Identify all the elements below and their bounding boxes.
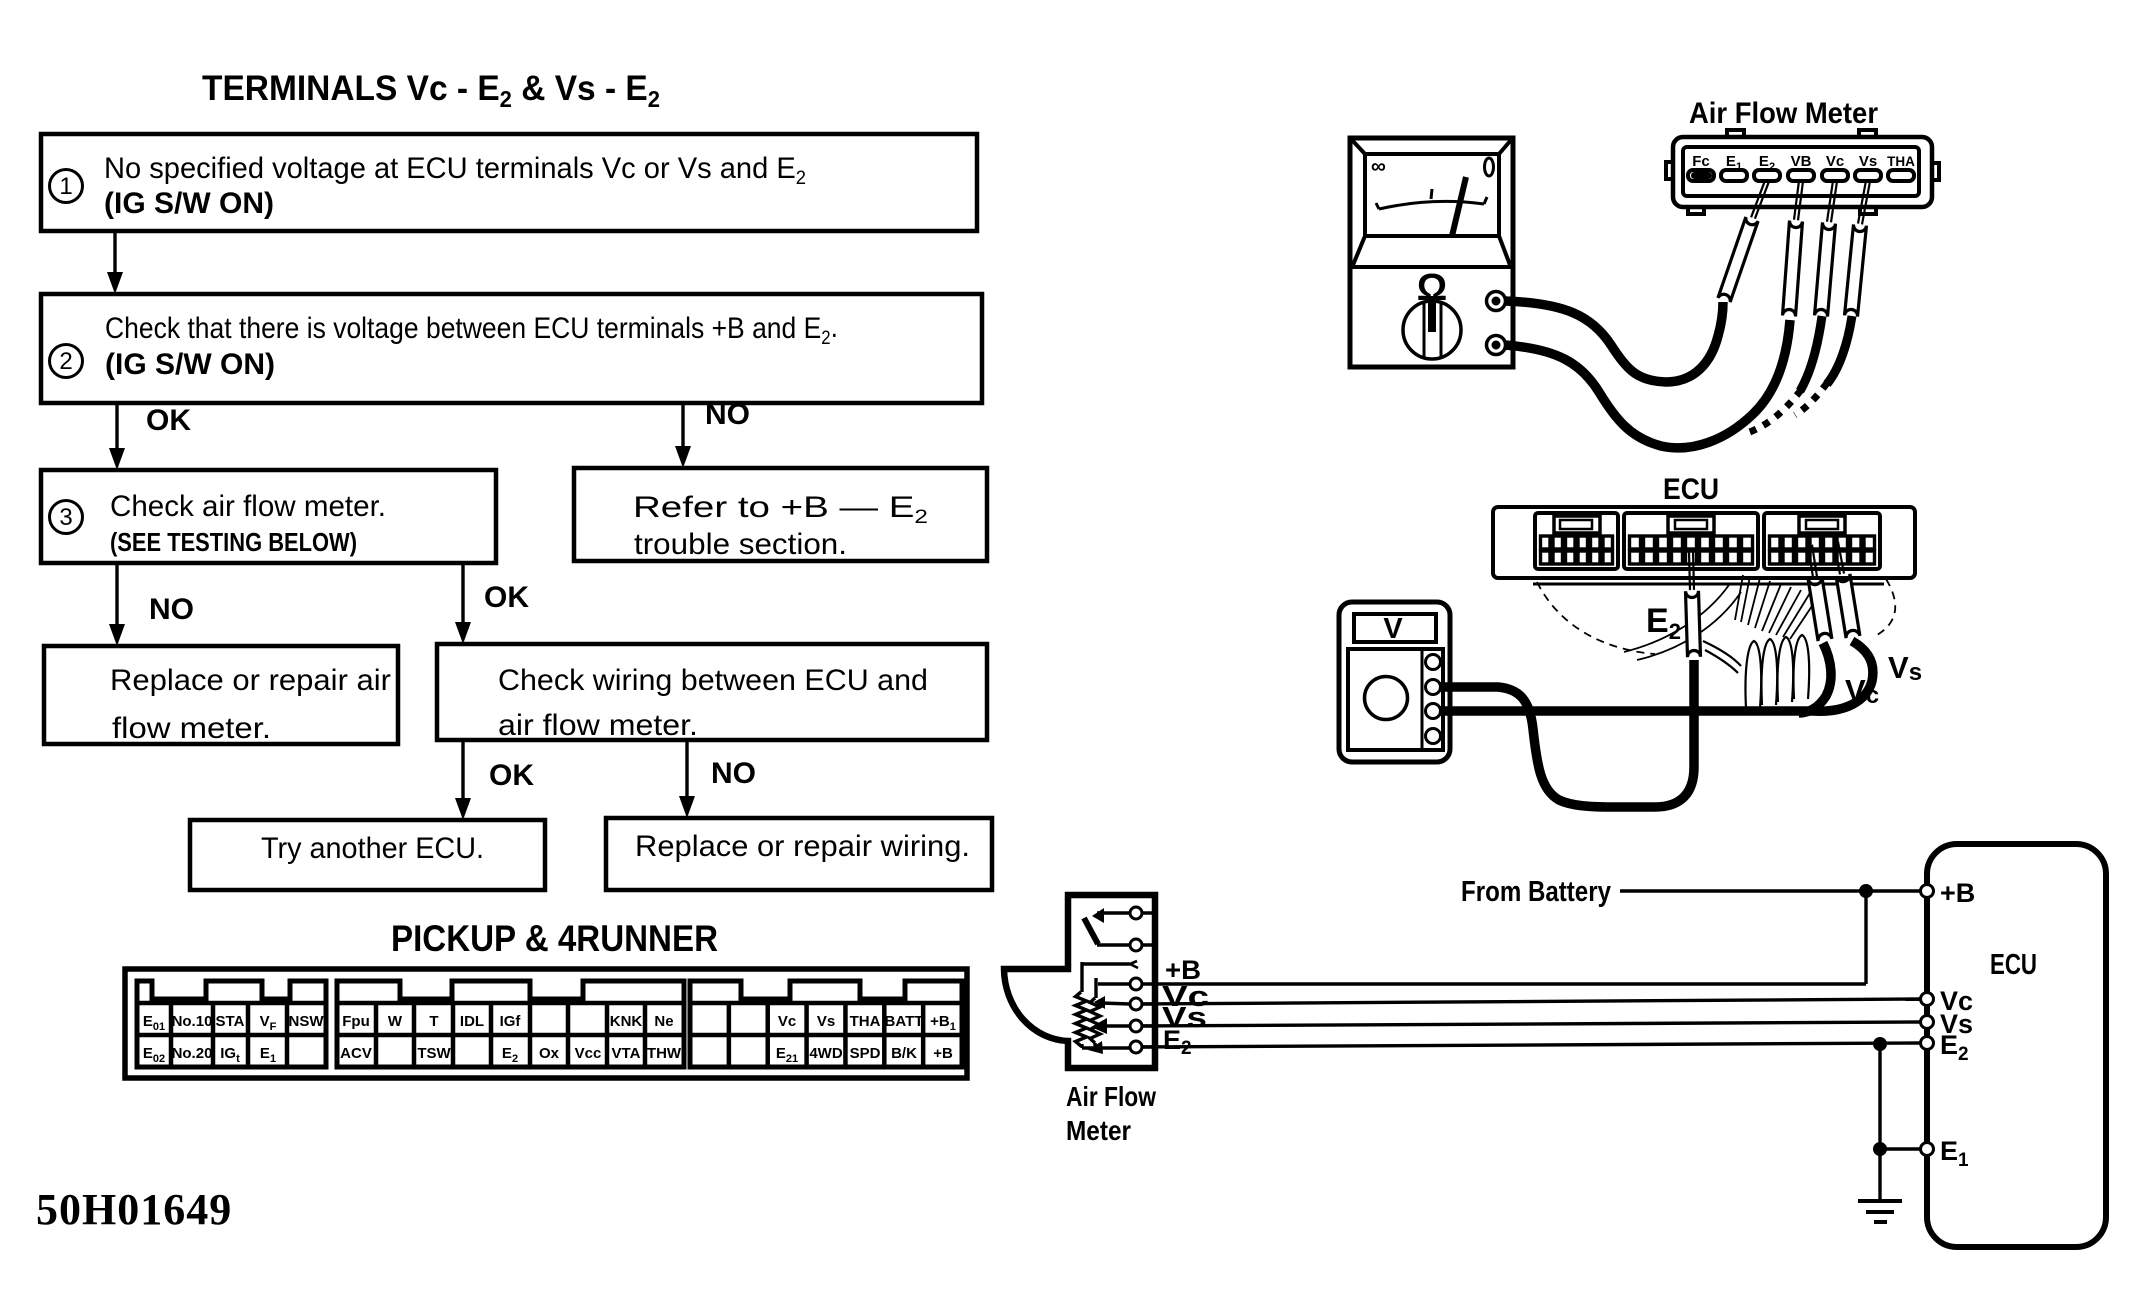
svg-text:Ne: Ne (654, 1013, 673, 1030)
svg-text:No specified voltage at ECU te: No specified voltage at ECU terminals Vc… (104, 152, 806, 189)
svg-text:50H01649: 50H01649 (36, 1185, 232, 1234)
svg-text:NO: NO (711, 757, 756, 790)
svg-text:THA: THA (850, 1013, 881, 1030)
svg-text:4WD: 4WD (809, 1045, 843, 1062)
svg-text:OK: OK (489, 759, 534, 792)
svg-text:SPD: SPD (850, 1045, 881, 1062)
svg-text:No.20: No.20 (172, 1045, 213, 1062)
svg-text:ACV: ACV (340, 1045, 372, 1062)
svg-text:BATT: BATT (885, 1013, 924, 1030)
svg-text:Check wiring between ECU and: Check wiring between ECU and (498, 664, 928, 697)
svg-text:Try another ECU.: Try another ECU. (261, 832, 484, 865)
svg-text:Fc: Fc (1692, 153, 1710, 170)
svg-text:2: 2 (59, 348, 72, 375)
svg-text:Vc: Vc (778, 1013, 796, 1030)
svg-text:Air Flow Meter: Air Flow Meter (1689, 97, 1878, 130)
svg-text:V: V (1383, 613, 1403, 645)
svg-text:OK: OK (484, 581, 529, 614)
svg-text:air flow meter.: air flow meter. (498, 709, 698, 742)
svg-text:Fpu: Fpu (342, 1013, 370, 1030)
svg-text:+B: +B (1940, 878, 1975, 908)
svg-text:THW: THW (647, 1045, 682, 1062)
svg-text:Check that there is voltage be: Check that there is voltage between ECU … (105, 311, 838, 349)
svg-text:No.10: No.10 (172, 1013, 213, 1030)
svg-text:STA: STA (216, 1013, 245, 1030)
svg-text:Vcc: Vcc (575, 1045, 602, 1062)
svg-text:T: T (429, 1013, 438, 1030)
svg-text:Vc: Vc (1826, 153, 1844, 170)
svg-text:From Battery: From Battery (1461, 876, 1611, 908)
svg-text:∞: ∞ (1371, 155, 1386, 178)
svg-text:Air Flow: Air Flow (1066, 1081, 1156, 1112)
svg-text:NO: NO (705, 398, 750, 431)
svg-text:(SEE TESTING BELOW): (SEE TESTING BELOW) (110, 527, 357, 557)
svg-text:THA: THA (1887, 154, 1915, 169)
svg-text:IGf: IGf (500, 1013, 522, 1030)
svg-text:PICKUP & 4RUNNER: PICKUP & 4RUNNER (391, 918, 718, 959)
svg-text:flow meter.: flow meter. (112, 712, 271, 745)
svg-text:OK: OK (146, 404, 191, 437)
svg-text:Ox: Ox (539, 1045, 560, 1062)
svg-text:ECU: ECU (1990, 949, 2037, 981)
svg-text:Refer to +B — E2: Refer to +B — E2 (633, 491, 928, 528)
svg-text:(IG S/W ON): (IG S/W ON) (104, 187, 274, 220)
svg-text:W: W (388, 1013, 403, 1030)
svg-text:IDL: IDL (460, 1013, 484, 1030)
svg-text:B/K: B/K (891, 1045, 917, 1062)
svg-text:TSW: TSW (417, 1045, 451, 1062)
svg-text:(IG S/W ON): (IG S/W ON) (105, 348, 275, 381)
svg-text:Vs: Vs (817, 1013, 835, 1030)
svg-text:Meter: Meter (1066, 1115, 1131, 1146)
svg-text:1: 1 (59, 173, 72, 200)
svg-text:ECU: ECU (1663, 473, 1719, 506)
svg-text:KNK: KNK (610, 1013, 643, 1030)
svg-text:+B: +B (933, 1045, 953, 1062)
svg-text:trouble section.: trouble section. (634, 528, 847, 561)
svg-text:TERMINALS Vc - E2 & Vs - E2: TERMINALS Vc - E2 & Vs - E2 (202, 69, 660, 112)
svg-text:VB: VB (1791, 153, 1812, 170)
svg-text:NSW: NSW (289, 1013, 325, 1030)
svg-text:3: 3 (59, 504, 72, 531)
svg-text:Replace or repair wiring.: Replace or repair wiring. (635, 830, 970, 863)
svg-text:Vs: Vs (1859, 153, 1877, 170)
svg-text:NO: NO (149, 593, 194, 626)
svg-text:Check air flow meter.: Check air flow meter. (110, 490, 386, 523)
svg-text:Replace or repair air: Replace or repair air (110, 664, 391, 697)
svg-text:VTA: VTA (612, 1045, 641, 1062)
